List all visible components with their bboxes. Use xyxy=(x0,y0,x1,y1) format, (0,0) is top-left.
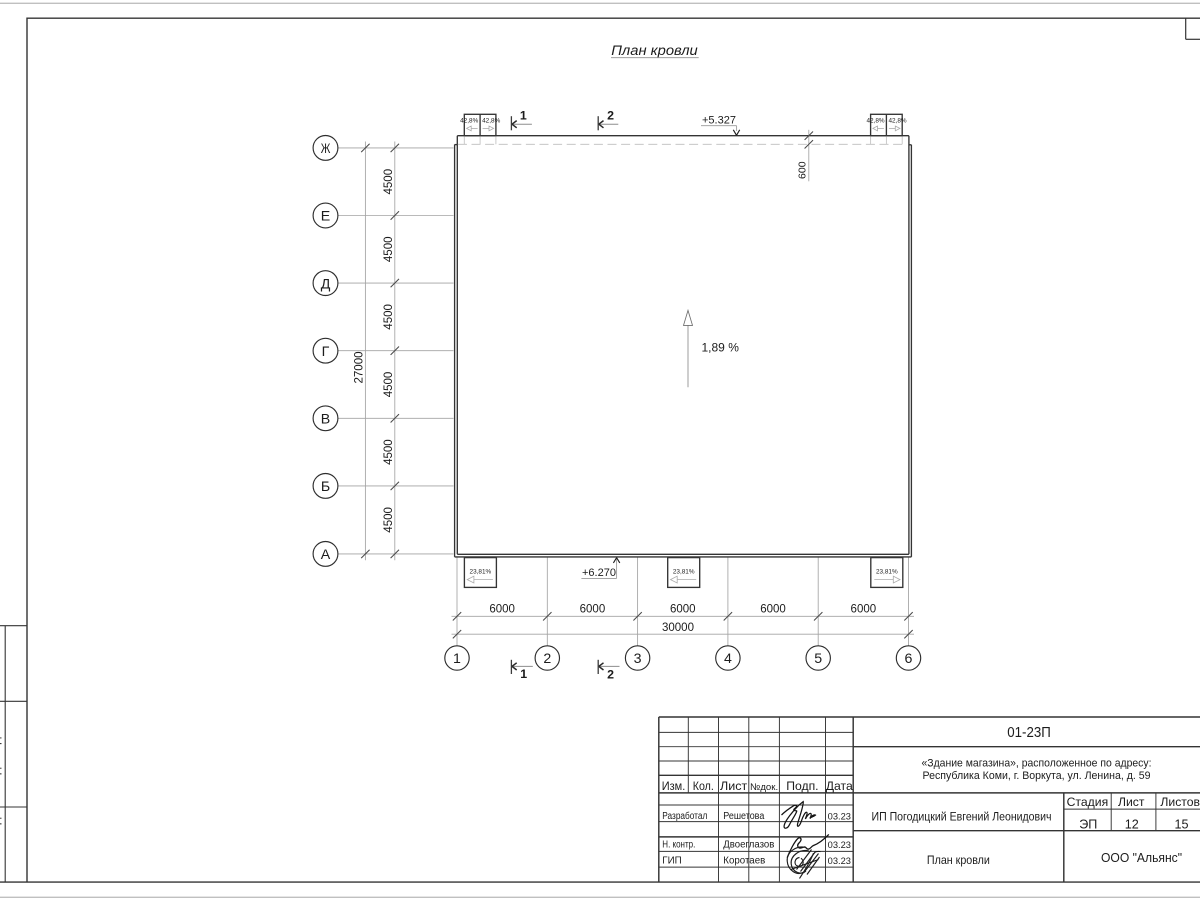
svg-text:ИП Погодицкий Евгений Леонидов: ИП Погодицкий Евгений Леонидович xyxy=(872,810,1052,823)
svg-text:4500: 4500 xyxy=(383,237,395,263)
svg-text:2: 2 xyxy=(543,651,551,667)
svg-text:Ж: Ж xyxy=(321,141,331,157)
svg-text:План кровли: План кровли xyxy=(611,43,698,58)
svg-text:03.23: 03.23 xyxy=(828,856,851,866)
svg-text:Листов: Листов xyxy=(1160,795,1200,809)
svg-text:Решетова: Решетова xyxy=(723,811,765,822)
svg-text:6: 6 xyxy=(905,651,913,667)
svg-text:Кол.: Кол. xyxy=(693,779,714,793)
svg-text:4500: 4500 xyxy=(383,372,395,398)
svg-text:ЭП: ЭП xyxy=(1079,817,1097,831)
svg-text:Стадия: Стадия xyxy=(1067,795,1109,809)
svg-text:№док.: №док. xyxy=(750,782,778,793)
svg-text:42,8%: 42,8% xyxy=(866,118,884,125)
svg-text:«Здание магазина», расположенн: «Здание магазина», расположенное по адре… xyxy=(922,758,1152,770)
svg-text:Взам. инв. №: Взам. инв. № xyxy=(0,626,2,700)
svg-text:1,89 %: 1,89 % xyxy=(702,340,740,354)
svg-text:Подп. и дата: Подп. и дата xyxy=(0,719,2,790)
svg-text:6000: 6000 xyxy=(489,603,515,615)
svg-text:23,81%: 23,81% xyxy=(470,569,492,576)
svg-text:5: 5 xyxy=(814,651,822,667)
svg-text:2: 2 xyxy=(607,668,614,682)
svg-text:ООО "Альянс": ООО "Альянс" xyxy=(1101,850,1182,865)
svg-text:42,8%: 42,8% xyxy=(482,118,500,125)
svg-text:12: 12 xyxy=(1125,817,1139,831)
svg-text:Дата: Дата xyxy=(826,779,853,793)
svg-text:Лист: Лист xyxy=(720,779,748,793)
svg-text:ГИП: ГИП xyxy=(662,856,681,867)
svg-text:42,8%: 42,8% xyxy=(888,118,906,125)
svg-text:4500: 4500 xyxy=(383,169,395,195)
svg-text:+6.270: +6.270 xyxy=(582,567,616,579)
svg-text:4500: 4500 xyxy=(383,304,395,330)
svg-text:6000: 6000 xyxy=(760,603,786,615)
svg-text:Разработал: Разработал xyxy=(662,811,707,822)
svg-text:Республика Коми, г. Воркута, у: Республика Коми, г. Воркута, ул. Ленина,… xyxy=(923,770,1151,782)
svg-text:А: А xyxy=(321,547,331,563)
svg-text:600: 600 xyxy=(797,161,809,179)
svg-text:Коротаев: Коротаев xyxy=(723,856,765,867)
svg-text:1: 1 xyxy=(453,651,461,667)
svg-text:03.23: 03.23 xyxy=(828,812,851,822)
svg-text:Подп.: Подп. xyxy=(786,779,818,793)
svg-text:Г: Г xyxy=(322,344,330,360)
svg-text:23,81%: 23,81% xyxy=(876,569,898,576)
svg-text:4: 4 xyxy=(724,651,732,667)
svg-text:27000: 27000 xyxy=(354,352,366,384)
svg-text:30000: 30000 xyxy=(662,622,694,634)
svg-text:В: В xyxy=(321,412,330,428)
svg-text:6000: 6000 xyxy=(580,603,606,615)
svg-text:Е: Е xyxy=(321,209,330,225)
svg-text:03.23: 03.23 xyxy=(828,840,851,850)
svg-text:Б: Б xyxy=(321,479,330,495)
svg-text:Изм.: Изм. xyxy=(662,779,686,793)
svg-text:42,8%: 42,8% xyxy=(460,118,478,125)
svg-text:Лист: Лист xyxy=(1118,795,1145,809)
svg-text:Инв. № подл.: Инв. № подл. xyxy=(0,807,2,882)
svg-text:6000: 6000 xyxy=(851,603,877,615)
svg-text:4500: 4500 xyxy=(383,439,395,465)
svg-text:+5.327: +5.327 xyxy=(702,114,736,126)
svg-text:Двоеглазов: Двоеглазов xyxy=(723,840,774,851)
svg-text:Н. контр.: Н. контр. xyxy=(662,840,695,851)
svg-text:3: 3 xyxy=(634,651,642,667)
svg-text:01-23П: 01-23П xyxy=(1007,725,1051,741)
svg-text:6000: 6000 xyxy=(670,603,696,615)
svg-text:23,81%: 23,81% xyxy=(673,569,695,576)
svg-text:4500: 4500 xyxy=(383,507,395,533)
svg-text:План кровли: План кровли xyxy=(927,854,990,867)
svg-text:Д: Д xyxy=(321,276,331,292)
svg-text:1: 1 xyxy=(520,108,527,122)
svg-text:15: 15 xyxy=(1174,817,1188,831)
svg-text:2: 2 xyxy=(607,108,614,122)
svg-text:1: 1 xyxy=(520,667,527,681)
